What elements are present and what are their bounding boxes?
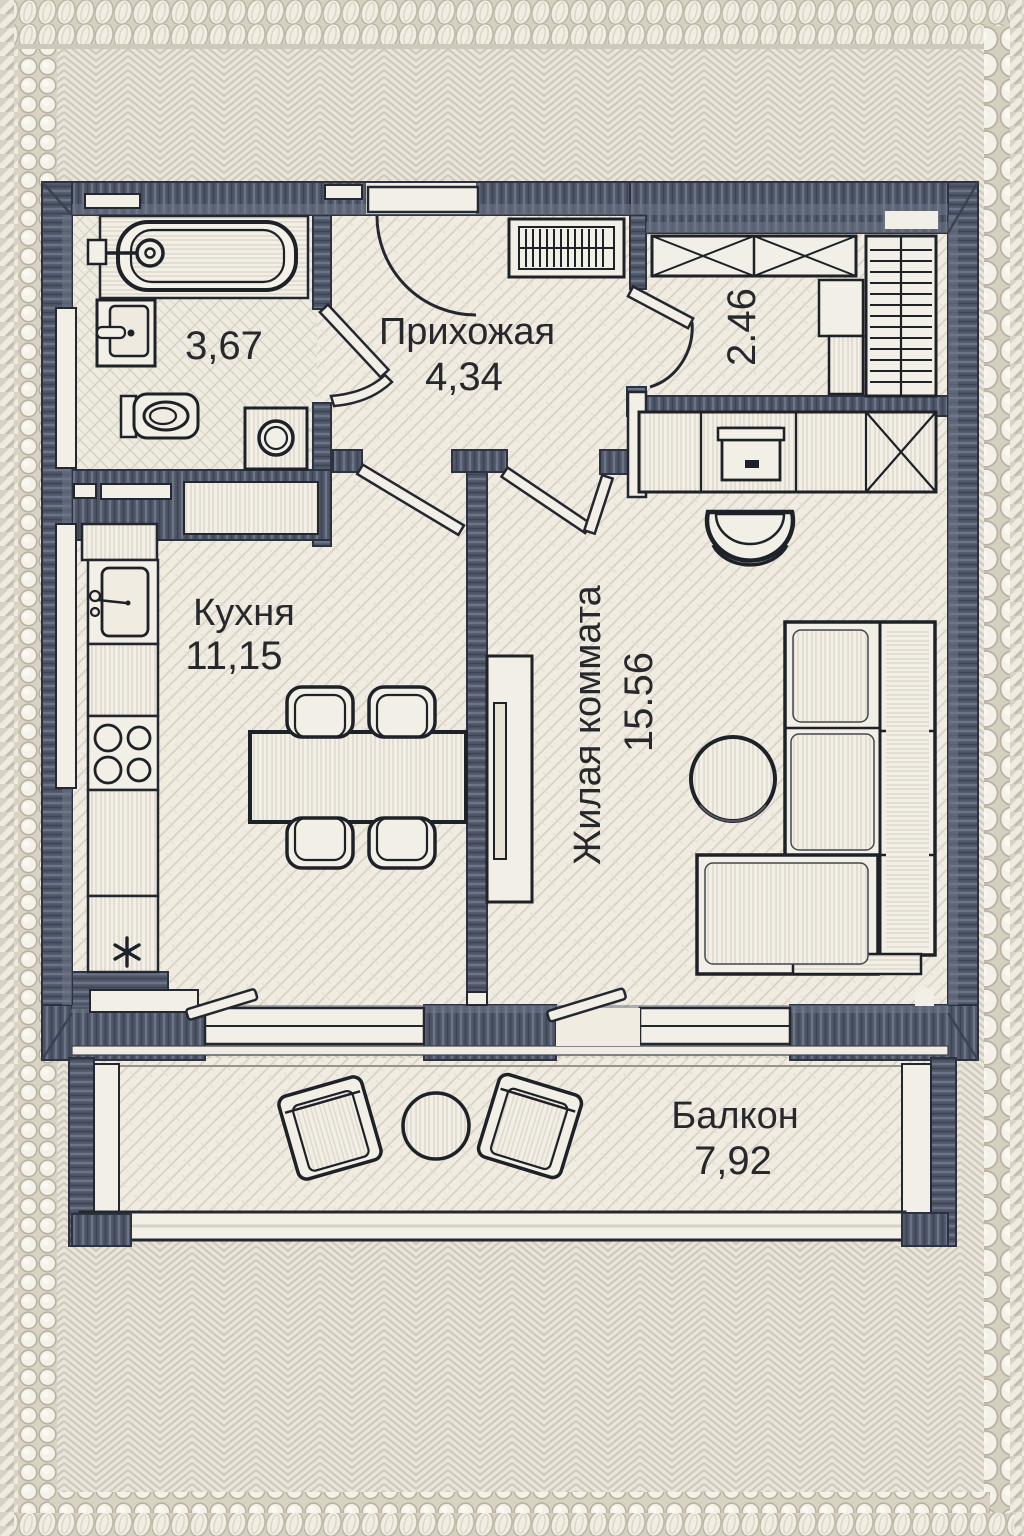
svg-text:Балкон: Балкон xyxy=(671,1095,798,1137)
svg-text:Прихожая: Прихожая xyxy=(379,311,555,353)
svg-text:7,92: 7,92 xyxy=(694,1139,772,1183)
svg-text:3,67: 3,67 xyxy=(185,324,263,368)
svg-text:Жилая коммата: Жилая коммата xyxy=(567,584,609,864)
svg-text:11,15: 11,15 xyxy=(185,634,282,678)
svg-text:2.46: 2.46 xyxy=(720,288,764,366)
svg-text:Кухня: Кухня xyxy=(193,592,295,634)
svg-text:4,34: 4,34 xyxy=(425,355,503,399)
svg-text:15.56: 15.56 xyxy=(617,652,661,752)
